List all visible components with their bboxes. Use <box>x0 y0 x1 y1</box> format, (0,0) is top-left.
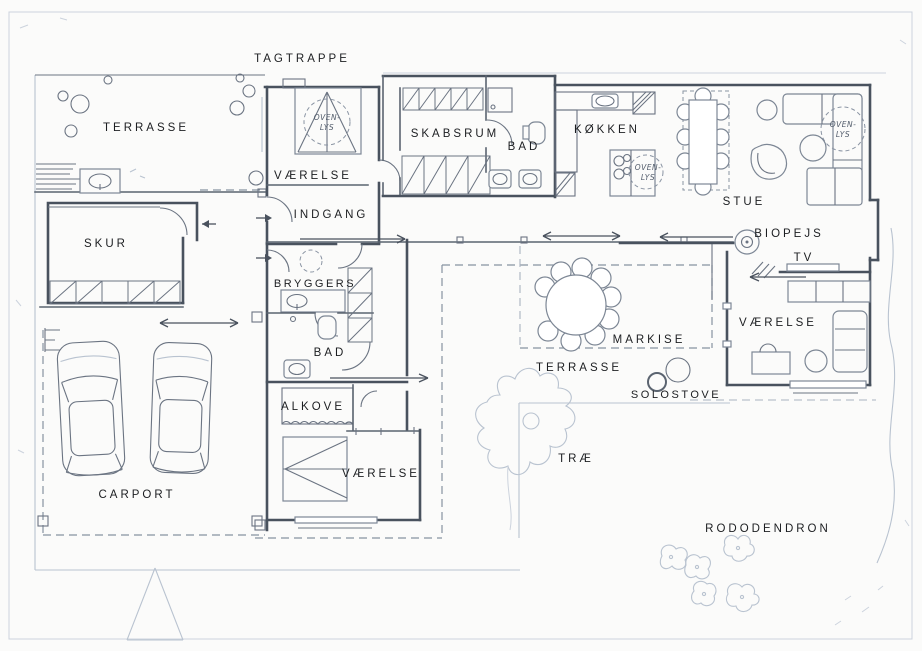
bad-sink-icon <box>284 360 310 378</box>
garden-table <box>535 258 621 351</box>
carport <box>57 340 213 476</box>
terrace-nw <box>35 74 266 197</box>
round-table <box>805 350 827 372</box>
label-tagtrappe: TAGTRAPPE <box>254 53 350 65</box>
label-terrasse-nw: TERRASSE <box>103 122 189 134</box>
label-alkove: ALKOVE <box>281 401 345 413</box>
skabsrum-closet-top <box>403 88 483 110</box>
label-skur: SKUR <box>84 238 128 250</box>
skur <box>40 203 197 307</box>
car <box>150 342 213 474</box>
sideboard <box>788 281 870 302</box>
skabsrum-closet-bottom <box>402 156 490 194</box>
label-trae: TRÆ <box>558 453 594 465</box>
svg-text:LYS: LYS <box>641 173 655 182</box>
dining-table <box>677 88 729 195</box>
room-labels: TAGTRAPPE TERRASSE VÆRELSE INDGANG SKABS… <box>84 53 831 535</box>
label-bad-mid: BAD <box>314 347 347 359</box>
label-stue: STUE <box>723 196 766 208</box>
label-koekken: KØKKEN <box>574 124 640 136</box>
side-table <box>757 100 777 120</box>
label-carport: CARPORT <box>98 489 175 501</box>
label-tv: TV <box>794 252 815 264</box>
car <box>57 340 126 476</box>
ovenlys-note: OVEN- <box>830 120 857 129</box>
armchair <box>751 144 786 179</box>
bed-vaerelse-right <box>833 311 867 372</box>
skur-closet <box>50 281 180 304</box>
stove-island: OVEN- LYS <box>610 150 663 196</box>
bryggers-sink <box>281 290 345 312</box>
label-rododendron: RODODENDRON <box>705 523 831 535</box>
shower <box>488 88 512 112</box>
terrace-stairs <box>36 164 80 189</box>
grill-table <box>80 169 120 193</box>
bed-vaerelse-bottom <box>283 437 347 501</box>
bad-toilet-icon <box>291 316 337 339</box>
label-markise: MARKISE <box>613 334 686 346</box>
coffee-table <box>800 135 826 161</box>
svg-text:LYS: LYS <box>320 123 334 132</box>
label-indgang: INDGANG <box>294 209 369 221</box>
svg-text:LYS: LYS <box>836 130 850 139</box>
label-vaerelse-top: VÆRELSE <box>274 170 352 182</box>
label-bryggers: BRYGGERS <box>274 278 356 290</box>
bed-vaerelse-top: OVEN- LYS <box>295 88 361 154</box>
sink-icon <box>489 170 541 188</box>
tree <box>476 368 575 530</box>
label-terrasse-court: TERRASSE <box>536 362 622 374</box>
floor-plan-page: OVEN- LYS <box>0 0 922 651</box>
ovenlys-note: OVEN- <box>635 163 662 172</box>
kitchen-sink-icon <box>592 94 618 108</box>
kitchen: OVEN- LYS <box>555 92 663 196</box>
label-vaerelse-right: VÆRELSE <box>739 317 817 329</box>
direction-arrows <box>160 214 806 382</box>
label-biopejs: BIOPEJS <box>754 228 824 240</box>
solostove <box>648 358 690 391</box>
label-bad-top: BAD <box>508 141 541 153</box>
stue-furniture: OVEN- LYS <box>751 94 865 205</box>
label-solostove: SOLOSTOVE <box>631 389 721 401</box>
rododendron-bushes <box>660 535 759 611</box>
label-vaerelse-bottom: VÆRELSE <box>342 468 420 480</box>
desk-and-chair <box>752 344 790 374</box>
floor-plan-drawing: OVEN- LYS <box>0 0 922 651</box>
label-skabsrum: SKABSRUM <box>411 128 500 140</box>
ovenlys-note: OVEN- <box>314 113 341 122</box>
